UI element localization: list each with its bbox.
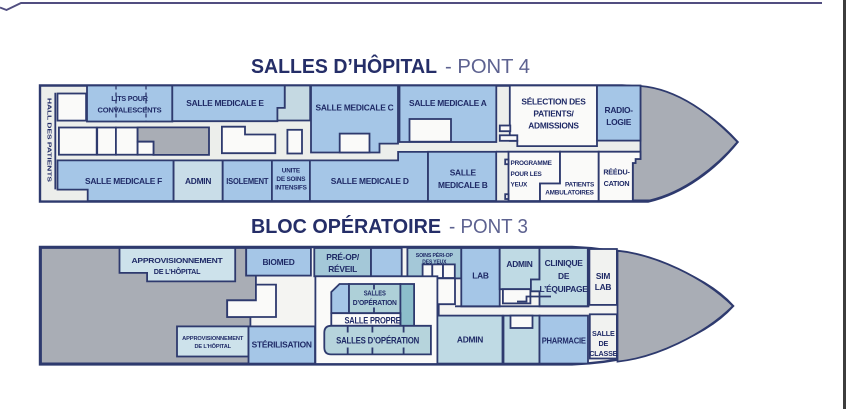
svg-text:YEUX: YEUX [511, 182, 529, 189]
svg-text:APPROVISIONNEMENT: APPROVISIONNEMENT [182, 336, 244, 342]
svg-text:STÉRILISATION: STÉRILISATION [252, 339, 312, 350]
svg-text:D’OPÉRATION: D’OPÉRATION [353, 298, 397, 307]
svg-text:SIM: SIM [596, 271, 610, 281]
svg-text:LAB: LAB [595, 282, 612, 292]
svg-text:SALLE MEDICALE E: SALLE MEDICALE E [186, 98, 264, 108]
svg-text:SÉLECTION DES: SÉLECTION DES [521, 96, 586, 107]
svg-text:CATION: CATION [604, 179, 630, 188]
svg-text:SALLES: SALLES [364, 289, 386, 298]
svg-text:PROGRAMME: PROGRAMME [511, 160, 553, 167]
svg-text:MEDICALE B: MEDICALE B [438, 180, 488, 190]
svg-text:APPROVISIONNEMENT: APPROVISIONNEMENT [132, 256, 224, 265]
svg-text:RÉVEIL: RÉVEIL [328, 263, 357, 274]
svg-text:SALLE: SALLE [450, 168, 477, 178]
svg-text:PATIENTS: PATIENTS [565, 182, 595, 189]
svg-text:PHARMACIE: PHARMACIE [542, 336, 587, 346]
svg-text:ADMIN: ADMIN [457, 335, 483, 345]
svg-text:L’ÉQUIPAGE: L’ÉQUIPAGE [540, 283, 589, 294]
svg-text:SALLE MEDICALE D: SALLE MEDICALE D [331, 176, 409, 186]
svg-text:SALLES D’OPÉRATION: SALLES D’OPÉRATION [336, 335, 419, 347]
svg-text:LOGIE: LOGIE [606, 117, 631, 127]
svg-text:PRÉ-OP/: PRÉ-OP/ [326, 251, 360, 262]
svg-text:RADIO-: RADIO- [605, 105, 634, 115]
svg-text:HALL DES PATIENTS: HALL DES PATIENTS [46, 98, 52, 183]
svg-text:BIOMED: BIOMED [263, 257, 295, 267]
svg-text:AMBULATOIRES: AMBULATOIRES [545, 190, 594, 197]
svg-text:CLASSE: CLASSE [589, 349, 617, 358]
svg-text:UNITE: UNITE [282, 168, 301, 175]
svg-text:RÉÉDU-: RÉÉDU- [603, 168, 630, 177]
svg-text:DE SOINS: DE SOINS [276, 176, 306, 183]
svg-text:SOINS PÉRI-OP: SOINS PÉRI-OP [416, 251, 453, 259]
svg-text:CONVALESCENTS: CONVALESCENTS [98, 106, 162, 115]
svg-text:DE: DE [599, 339, 609, 348]
svg-text:DE L’HÔPITAL: DE L’HÔPITAL [154, 267, 201, 276]
svg-text:SALLE MEDICALE A: SALLE MEDICALE A [409, 98, 487, 108]
svg-text:CLINIQUE: CLINIQUE [545, 258, 584, 268]
svg-text:SALLE MEDICALE C: SALLE MEDICALE C [316, 103, 394, 113]
svg-text:ADMIN: ADMIN [506, 259, 532, 269]
svg-text:LAB: LAB [472, 271, 489, 281]
svg-text:DE L’HÔPITAL: DE L’HÔPITAL [195, 342, 232, 350]
svg-text:SALLES D’HÔPITAL: SALLES D’HÔPITAL [251, 54, 437, 78]
svg-text:SALLE: SALLE [592, 329, 615, 338]
svg-text:LITS POUR: LITS POUR [111, 94, 149, 103]
svg-text:ADMISSIONS: ADMISSIONS [528, 121, 579, 131]
svg-text:POUR LES: POUR LES [511, 171, 543, 178]
svg-text:- PONT 3: - PONT 3 [449, 215, 528, 238]
svg-text:ISOLEMENT: ISOLEMENT [226, 176, 269, 186]
svg-text:ADMIN: ADMIN [185, 176, 211, 186]
svg-text:- PONT 4: - PONT 4 [445, 55, 530, 78]
svg-text:INTENSIFS: INTENSIFS [275, 185, 308, 192]
svg-text:DE: DE [558, 271, 570, 281]
svg-text:SALLE MEDICALE F: SALLE MEDICALE F [85, 176, 162, 186]
svg-text:BLOC OPÉRATOIRE: BLOC OPÉRATOIRE [251, 215, 441, 238]
svg-text:PATIENTS/: PATIENTS/ [533, 109, 574, 119]
svg-text:SALLE PROPRE: SALLE PROPRE [345, 316, 401, 326]
